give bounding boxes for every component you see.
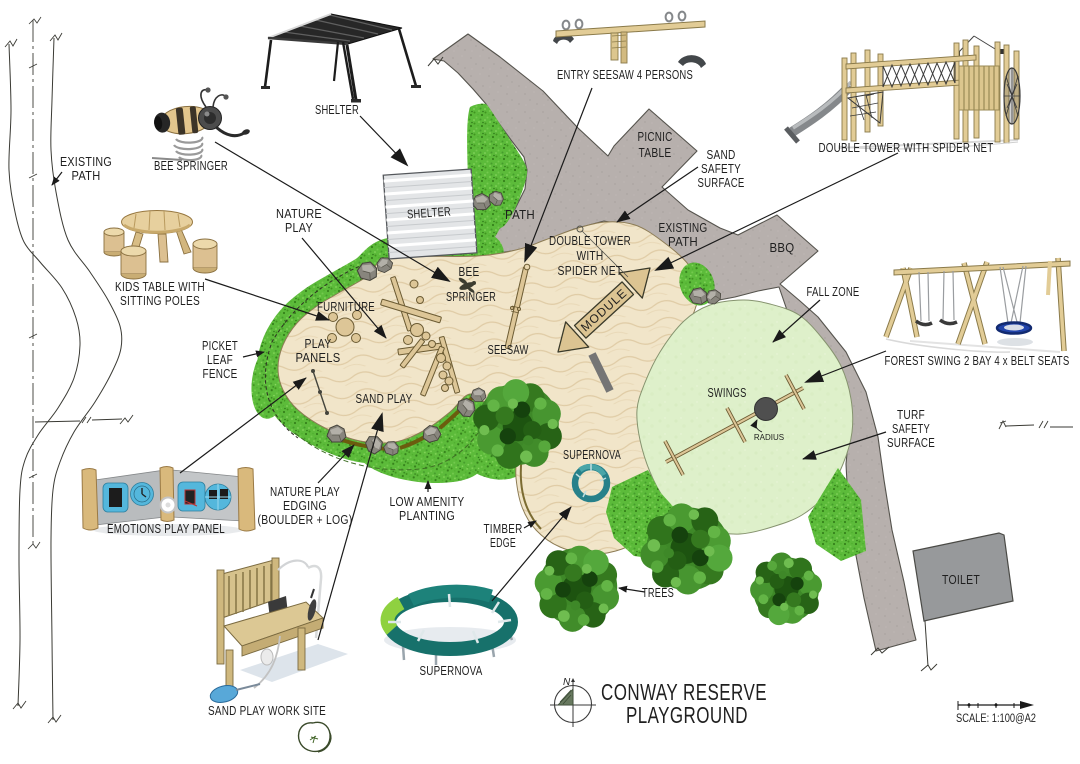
svg-text:PANELS: PANELS (296, 351, 341, 365)
svg-text:PATH: PATH (72, 169, 101, 183)
svg-text:BEE: BEE (459, 265, 480, 279)
svg-text:SUPERNOVA: SUPERNOVA (563, 448, 621, 462)
svg-text:SAFETY: SAFETY (892, 422, 930, 436)
svg-text:SAND PLAY: SAND PLAY (356, 392, 413, 406)
svg-text:TURF: TURF (897, 408, 925, 422)
svg-text:BBQ: BBQ (770, 241, 795, 255)
svg-text:TIMBER: TIMBER (484, 522, 523, 536)
svg-text:SHELTER: SHELTER (315, 103, 359, 117)
svg-text:ENTRY SEESAW 4 PERSONS: ENTRY SEESAW 4 PERSONS (557, 68, 693, 82)
svg-text:SWINGS: SWINGS (708, 386, 747, 400)
svg-text:EXISTING: EXISTING (60, 155, 112, 169)
svg-text:PICKET: PICKET (202, 339, 238, 353)
svg-text:SAND PLAY WORK SITE: SAND PLAY WORK SITE (208, 704, 326, 718)
svg-text:SUPERNOVA: SUPERNOVA (420, 664, 483, 678)
svg-text:EXISTING: EXISTING (659, 221, 708, 235)
svg-text:RADIUS: RADIUS (754, 433, 784, 442)
svg-text:EMOTIONS PLAY PANEL: EMOTIONS PLAY PANEL (107, 522, 225, 536)
svg-text:FOREST SWING 2 BAY 4 x BELT SE: FOREST SWING 2 BAY 4 x BELT SEATS (885, 354, 1070, 368)
svg-text:TABLE: TABLE (639, 146, 672, 160)
svg-text:TREES: TREES (642, 586, 674, 600)
svg-text:DOUBLE TOWER: DOUBLE TOWER (549, 234, 631, 248)
svg-text:WITH: WITH (577, 249, 604, 263)
svg-text:LEAF: LEAF (207, 353, 233, 367)
svg-text:PATH: PATH (668, 235, 698, 249)
svg-text:SAFETY: SAFETY (701, 162, 741, 176)
svg-text:PLAYGROUND: PLAYGROUND (626, 702, 748, 728)
svg-text:SURFACE: SURFACE (887, 436, 935, 450)
svg-text:KIDS TABLE WITH: KIDS TABLE WITH (115, 280, 205, 294)
svg-text:FALL ZONE: FALL ZONE (807, 285, 860, 299)
svg-text:SAND: SAND (707, 148, 736, 162)
svg-text:SITTING POLES: SITTING POLES (120, 294, 200, 308)
svg-text:SPRINGER: SPRINGER (446, 290, 496, 304)
svg-text:SEESAW: SEESAW (488, 343, 529, 357)
svg-text:EDGE: EDGE (490, 536, 516, 550)
svg-text:N: N (563, 677, 571, 688)
svg-text:DOUBLE TOWER WITH SPIDER NET: DOUBLE TOWER WITH SPIDER NET (819, 141, 994, 155)
svg-text:TOILET: TOILET (942, 573, 980, 587)
svg-text:SPIDER NET: SPIDER NET (558, 264, 623, 278)
svg-text:SCALE: 1:100@A2: SCALE: 1:100@A2 (956, 713, 1036, 725)
svg-text:(BOULDER + LOG): (BOULDER + LOG) (258, 513, 353, 527)
svg-text:NATURE: NATURE (276, 207, 322, 221)
svg-text:EDGING: EDGING (283, 499, 327, 513)
svg-text:FURNITURE: FURNITURE (317, 300, 375, 314)
svg-text:PATH: PATH (505, 208, 535, 222)
svg-text:LOW AMENITY: LOW AMENITY (390, 495, 465, 509)
svg-text:PLANTING: PLANTING (399, 509, 455, 523)
svg-text:PICNIC: PICNIC (638, 130, 673, 144)
svg-text:PLAY: PLAY (285, 221, 313, 235)
svg-text:NATURE PLAY: NATURE PLAY (270, 485, 340, 499)
svg-text:BEE SPRINGER: BEE SPRINGER (154, 159, 228, 173)
svg-text:SURFACE: SURFACE (698, 176, 745, 190)
svg-text:PLAY: PLAY (305, 337, 332, 351)
svg-text:FENCE: FENCE (203, 367, 238, 381)
